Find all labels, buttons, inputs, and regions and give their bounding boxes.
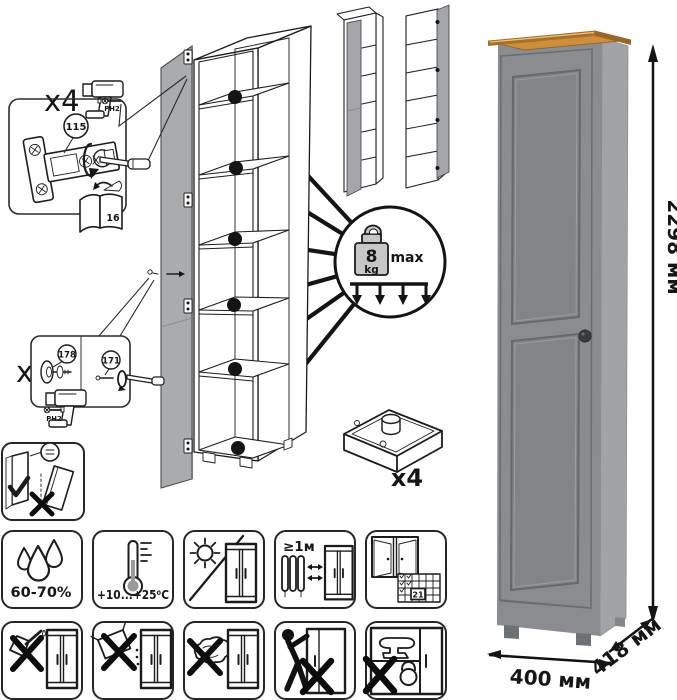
wardrobe-icon [47,630,77,688]
care-icon-no-direct-sunlight [184,531,264,608]
wall-anchor-warning-icon [2,443,84,520]
door-variant-right-hinge [406,5,449,188]
foot-count-label: x4 [391,464,423,492]
instruction-illustration: 8 kg max x4 PH2 [0,0,677,700]
care-icon-no-abrasives [91,622,173,699]
care-icon-no-dragging [275,622,355,699]
screw-part-number: 171 [102,357,120,367]
care-icon-humidity: 60-70% [2,531,82,608]
shelf-load-limit-badge: 8 kg max [335,207,445,317]
calendar-icon: 21 [398,574,440,602]
door-variant-left-hinge [337,7,383,196]
assembly-instruction-sheet: 8 kg max x4 PH2 [0,0,677,700]
ph2-bit-icon-2 [44,407,61,413]
hinge-step: x4 PH2 115 [9,76,187,232]
cabinet-side-face [600,38,628,636]
distance-label: ≥1м [283,539,315,555]
ph2-label: PH2 [104,105,120,113]
care-icon-no-heavy-load [366,622,446,699]
door-knob [579,330,591,342]
width-label: 400 мм [509,664,592,694]
hinge-part-number: 115 [66,122,87,133]
care-icon-no-scouring [184,622,264,699]
height-label: 2298 мм [663,199,677,294]
care-icon-heat-source-distance: ≥1м [275,531,355,608]
wardrobe-icon [141,630,171,688]
dimension-height: 2298 мм [648,44,677,624]
knob-part-number: 178 [58,351,76,361]
leveling-foot-drawing: x4 [344,410,442,492]
temperature-label: +10...+25⁰C [97,588,169,602]
product-render [488,31,631,646]
ph2-label-2: PH2 [46,415,62,423]
humidity-label: 60-70% [11,585,72,601]
weight-max-label: max [390,250,423,266]
manual-page-number: 16 [106,213,120,224]
open-door-panel [161,46,192,488]
wardrobe-icon [226,544,256,602]
hinge-count-label: x4 [44,84,80,118]
manual-book-icon: 16 [80,181,122,232]
wardrobe-icon [325,546,353,599]
care-icon-ventilation: 21 [366,531,446,608]
care-icon-no-sharp-tools [2,622,82,699]
radiator-icon [282,556,304,597]
handle-step: x1 178 171 [16,278,164,427]
wardrobe-icon [228,630,258,688]
care-icon-temperature: +10...+25⁰C [93,531,173,608]
weight-unit: kg [364,264,379,276]
calendar-day-label: 21 [412,591,424,600]
